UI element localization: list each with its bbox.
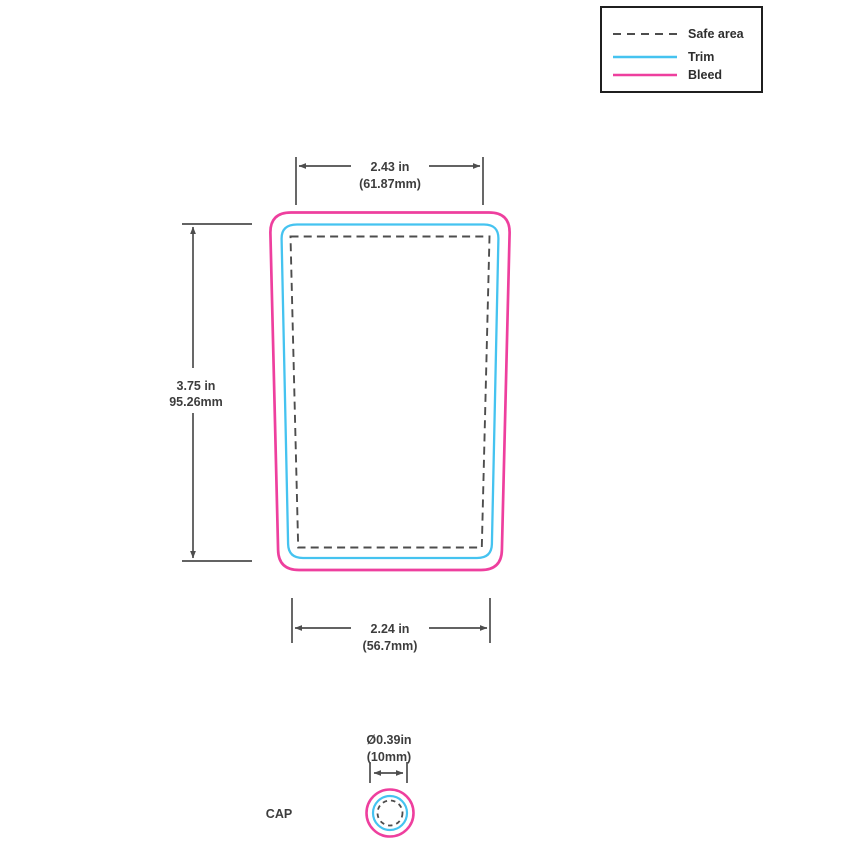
legend-item-label: Safe area [688,27,744,41]
bottom-dim-mm: (56.7mm) [363,639,418,653]
safe-area-outline [291,237,490,548]
bottom-dim-inches: 2.24 in [371,622,410,636]
dieline-svg: 2.43 in (61.87mm) 3.75 in 95.26mm 2.24 i… [0,0,850,850]
trim-line-icon [612,54,678,60]
legend-item-label: Trim [688,50,714,64]
cap-label: CAP [266,807,292,821]
legend: Safe area Trim Bleed [600,6,763,93]
bleed-outline [270,213,509,571]
legend-item-label: Bleed [688,68,722,82]
cap-dimension [370,762,407,783]
legend-item-trim: Trim [612,50,714,64]
safe-area-line-icon [612,31,678,37]
top-dim-inches: 2.43 in [371,160,410,174]
left-dim-inches: 3.75 in [177,379,216,393]
dieline-canvas: Safe area Trim Bleed [0,0,850,850]
bottom-dimension: 2.24 in (56.7mm) [292,598,490,653]
trim-outline [282,225,499,559]
cap-dim-mm: (10mm) [367,750,411,764]
left-dimension: 3.75 in 95.26mm [169,224,252,561]
top-dim-mm: (61.87mm) [359,177,421,191]
label-body [270,213,509,571]
cap-group: Ø0.39in (10mm) CAP [266,733,414,837]
left-dim-mm: 95.26mm [169,395,223,409]
legend-item-safe-area: Safe area [612,27,744,41]
cap-dim-inches: Ø0.39in [366,733,411,747]
cap-safe-circle [378,801,403,826]
top-dimension: 2.43 in (61.87mm) [296,157,483,205]
bleed-line-icon [612,72,678,78]
legend-item-bleed: Bleed [612,68,722,82]
